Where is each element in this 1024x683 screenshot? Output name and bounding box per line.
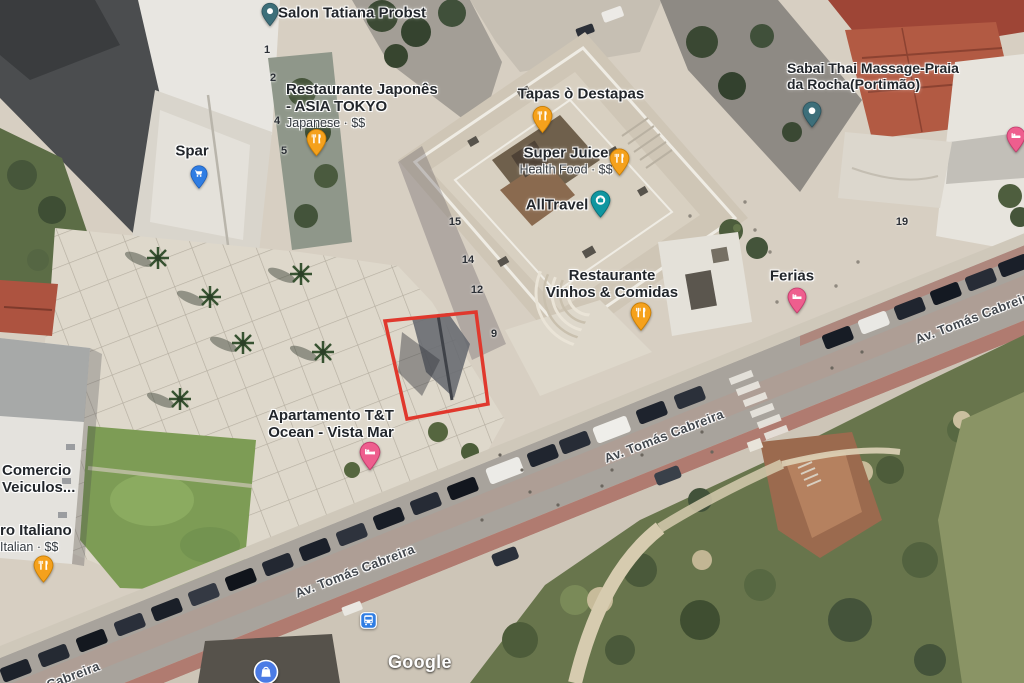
place-label-ro-italiano[interactable]: ro Italiano Italian · $$ (0, 523, 72, 554)
building-number: 5 (281, 145, 287, 157)
map-viewport[interactable]: 1 2 4 5 15 14 12 9 19 Av. Tomás Cabreira… (0, 0, 1024, 683)
google-logo[interactable]: Google (388, 652, 452, 673)
building-number: 12 (471, 284, 483, 296)
shopping-bag-badge-icon[interactable] (253, 659, 279, 683)
highlight-rectangle (0, 0, 1024, 683)
supermarket-pin-icon[interactable] (190, 164, 208, 190)
building-number: 1 (264, 44, 270, 56)
lodging-pin-icon[interactable] (787, 287, 807, 314)
travel-agency-pin-icon[interactable] (590, 190, 611, 218)
place-label-tapas-o-destapas[interactable]: Tapas ò Destapas (518, 87, 644, 104)
place-label-apartamento-tt-ocean[interactable]: Apartamento T&T Ocean - Vista Mar (268, 408, 394, 442)
building-number: 9 (491, 328, 497, 340)
building-number: 15 (449, 216, 461, 228)
generic-place-pin-icon[interactable] (802, 101, 822, 128)
building-number: 4 (274, 115, 280, 127)
building-number: 14 (462, 254, 474, 266)
lodging-pin-icon[interactable] (359, 441, 381, 471)
generic-place-pin-icon[interactable] (261, 2, 279, 27)
restaurant-pin-icon[interactable] (609, 148, 630, 176)
place-label-asia-tokyo[interactable]: Restaurante Japonês - ASIA TOKYO Japanes… (286, 82, 438, 130)
lodging-pin-icon[interactable] (1006, 126, 1024, 153)
building-number: 19 (896, 216, 908, 228)
building-number: 2 (270, 72, 276, 84)
place-label-comercio-veiculos[interactable]: Comercio Veiculos... (2, 463, 75, 497)
place-label-alltravel[interactable]: AllTravel (526, 198, 589, 215)
place-label-sabai-thai-massage[interactable]: Sabai Thai Massage-Praia da Rocha(Portim… (787, 61, 959, 92)
restaurant-pin-icon[interactable] (630, 301, 652, 332)
place-label-spar[interactable]: Spar (175, 144, 208, 161)
place-label-salon-tatiana-probst[interactable]: Salon Tatiana Probst (278, 6, 426, 23)
place-label-super-juice[interactable]: Super Juice Health Food · $$ (519, 146, 612, 177)
place-label-vinhos-comidas[interactable]: Restaurante Vinhos & Comidas (546, 268, 678, 302)
restaurant-pin-icon[interactable] (33, 554, 54, 584)
bus-stop-icon[interactable] (360, 612, 377, 629)
restaurant-pin-icon[interactable] (306, 128, 327, 157)
restaurant-pin-icon[interactable] (532, 105, 553, 134)
place-label-ferias[interactable]: Ferias (770, 269, 814, 286)
